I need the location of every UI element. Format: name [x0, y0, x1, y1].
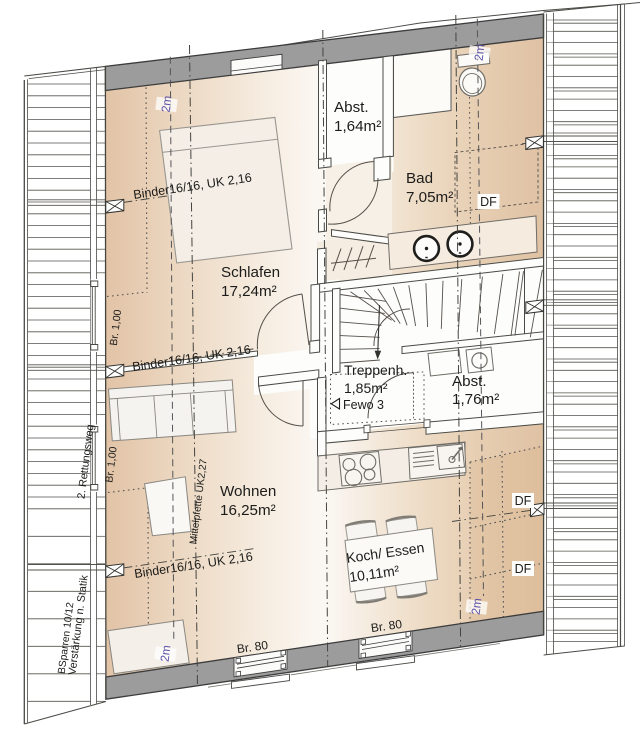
svg-text:2m: 2m: [469, 597, 485, 615]
svg-text:Abst.: Abst.: [334, 99, 369, 116]
svg-text:1,85m²: 1,85m²: [344, 380, 388, 396]
svg-text:Wohnen: Wohnen: [220, 483, 276, 500]
svg-text:2m: 2m: [472, 43, 488, 61]
svg-text:2m: 2m: [158, 644, 174, 662]
svg-text:Bad: Bad: [406, 170, 433, 187]
svg-text:Treppenh.: Treppenh.: [344, 362, 407, 378]
svg-text:Schlafen: Schlafen: [221, 264, 280, 281]
svg-text:2m: 2m: [159, 95, 175, 113]
svg-text:1,76m²: 1,76m²: [452, 391, 499, 408]
svg-text:16,25m²: 16,25m²: [220, 502, 276, 519]
svg-text:DF: DF: [480, 195, 497, 209]
svg-text:DF: DF: [515, 562, 532, 576]
svg-text:Fewo 3: Fewo 3: [343, 398, 384, 412]
svg-text:17,24m²: 17,24m²: [221, 283, 277, 300]
svg-text:1,64m²: 1,64m²: [334, 118, 381, 135]
svg-text:Abst.: Abst.: [452, 373, 487, 390]
svg-text:7,05m²: 7,05m²: [406, 189, 453, 206]
svg-text:DF: DF: [515, 494, 532, 508]
